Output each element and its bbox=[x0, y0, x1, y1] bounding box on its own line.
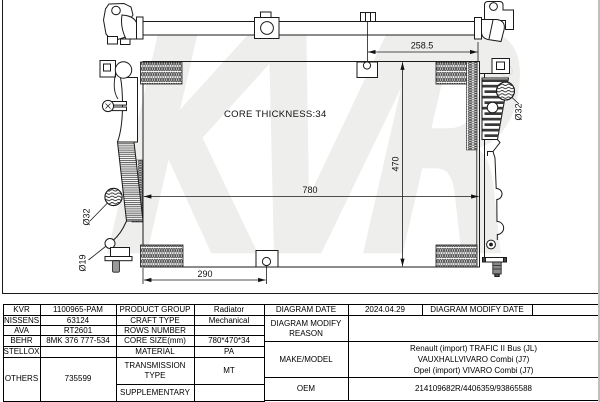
diagram-info-table: DIAGRAM DATE 2024.04.29 DIAGRAM MODIFY D… bbox=[264, 304, 600, 401]
dim-258-5-label: 258.5 bbox=[411, 41, 434, 51]
core-size-label: CORE SIZE(mm) bbox=[116, 336, 194, 346]
craft-type-label: CRAFT TYPE bbox=[116, 316, 194, 326]
brand-behr: BEHR bbox=[3, 336, 40, 346]
make-model-label: MAKE/MODEL bbox=[264, 342, 348, 378]
supplementary-value bbox=[194, 384, 264, 401]
right-elbow bbox=[482, 20, 505, 42]
brand-kvr: KVR bbox=[3, 305, 40, 316]
dim-470-label: 470 bbox=[391, 156, 401, 171]
right-mount-hole bbox=[490, 3, 498, 11]
brand-ava: AVA bbox=[3, 326, 40, 336]
left-inlet-port bbox=[115, 62, 131, 78]
diagram-date-value: 2024.04.29 bbox=[348, 305, 422, 316]
dim-780-label: 780 bbox=[302, 185, 317, 195]
diagram-modify-date-value bbox=[532, 305, 599, 316]
product-group-label: PRODUCT GROUP bbox=[116, 305, 194, 316]
diagram-modify-date-label: DIAGRAM MODIFY DATE bbox=[422, 305, 532, 316]
left-drain-plug bbox=[113, 261, 120, 273]
diagram-frame bbox=[3, 0, 599, 294]
right-drain-plug bbox=[493, 262, 501, 274]
make-model-line-2: VAUXHALLVIVARO Combi (J7) bbox=[349, 354, 599, 365]
diagram-date-label: DIAGRAM DATE bbox=[264, 305, 348, 316]
dia-32-left-label: Ø32 bbox=[82, 208, 92, 225]
rows-number-value bbox=[194, 326, 264, 336]
material-label: MATERIAL bbox=[116, 346, 194, 357]
right-tank bbox=[480, 59, 515, 277]
product-group-value: Radiator bbox=[194, 305, 264, 316]
make-model-line-3: Opel (import) VIVARO Combi (J7) bbox=[349, 365, 599, 376]
material-value: PA bbox=[194, 346, 264, 357]
dia-32-right-label: Ø32 bbox=[514, 103, 524, 120]
cross-reference-table: KVR 1100965-PAM PRODUCT GROUP Radiator N… bbox=[3, 304, 265, 402]
oem-label: OEM bbox=[264, 378, 348, 401]
behr-number: 8MK 376 777-534 bbox=[40, 336, 116, 346]
modify-reason-label: DIAGRAM MODIFY REASON bbox=[264, 316, 348, 342]
craft-type-value: Mechanical bbox=[194, 316, 264, 326]
brand-nissens: NISSENS bbox=[3, 316, 40, 326]
transmission-type-label: TRANSMISSION TYPE bbox=[116, 357, 194, 384]
kvr-number: 1100965-PAM bbox=[40, 305, 116, 316]
left-mount-hole bbox=[112, 6, 121, 15]
make-model-value: Renault (import) TRAFIC II Bus (JL) VAUX… bbox=[348, 342, 599, 378]
core-outline bbox=[143, 62, 480, 268]
make-model-line-1: Renault (import) TRAFIC II Bus (JL) bbox=[349, 343, 599, 354]
stellox-number bbox=[40, 346, 116, 357]
oem-value: 214109682R/4406359/93865588 bbox=[348, 378, 599, 401]
core-size-value: 780*470*34 bbox=[194, 336, 264, 346]
mounting-brackets bbox=[256, 62, 378, 267]
modify-reason-value bbox=[348, 316, 599, 342]
left-elbow bbox=[122, 15, 138, 39]
brand-others: OTHERS bbox=[3, 357, 40, 401]
rows-number-label: ROWS NUMBER bbox=[116, 326, 194, 336]
top-view-pipe-assembly bbox=[104, 2, 514, 45]
brand-stellox: STELLOX bbox=[3, 346, 40, 357]
core-thickness-note: CORE THICKNESS:34 bbox=[224, 109, 327, 120]
radiator-technical-drawing: 258.5 bbox=[0, 0, 600, 297]
dia-19-left-label: Ø19 bbox=[78, 254, 88, 271]
left-tank bbox=[100, 61, 143, 273]
supplementary-label: SUPPLEMENTARY bbox=[116, 384, 194, 401]
core-fin-blocks bbox=[132, 62, 477, 267]
others-number: 735599 bbox=[40, 357, 116, 401]
dim-290-label: 290 bbox=[197, 269, 212, 279]
transmission-type-value: MT bbox=[194, 357, 264, 384]
ava-number: RT2601 bbox=[40, 326, 116, 336]
nissens-number: 63124 bbox=[40, 316, 116, 326]
